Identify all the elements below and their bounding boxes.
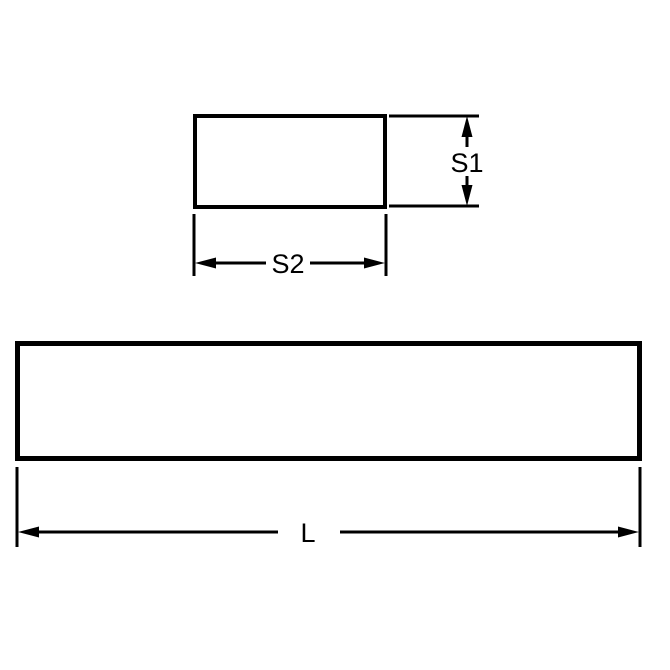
dimension-diagram: S1 S2 L	[0, 0, 670, 670]
s1-upper-arrowhead	[462, 116, 473, 137]
side-view-rect	[18, 344, 640, 459]
l-dimension-label: L	[300, 518, 315, 548]
s2-dimension-label: S2	[271, 249, 304, 279]
drawing-canvas: S1 S2 L	[0, 0, 670, 670]
l-left-arrowhead	[18, 527, 39, 538]
cross-section-rect	[195, 116, 385, 207]
l-right-arrowhead	[618, 527, 639, 538]
s1-dimension-label: S1	[450, 148, 483, 178]
s2-left-arrowhead	[195, 258, 216, 269]
s2-right-arrowhead	[364, 258, 385, 269]
s1-lower-arrowhead	[462, 185, 473, 206]
